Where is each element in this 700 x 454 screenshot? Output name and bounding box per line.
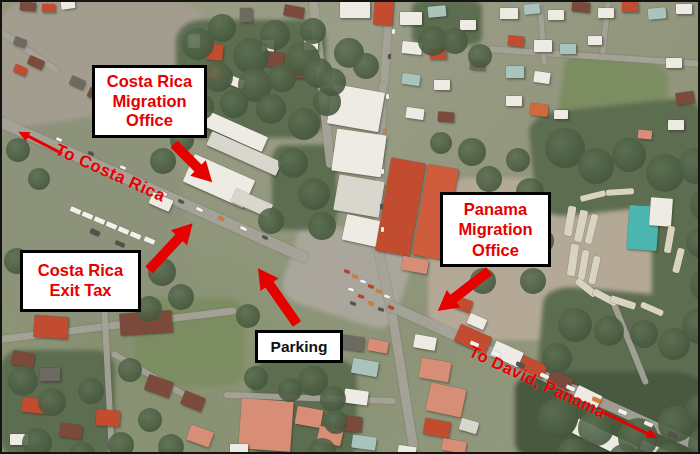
label-text-parking: Parking (271, 338, 328, 356)
border-crossing-map-image: Costa Rica Migration Office Costa Rica E… (0, 0, 700, 454)
arrow-head (646, 428, 660, 442)
label-text-costa-rica-exit-tax: Costa Rica Exit Tax (38, 261, 123, 301)
arrow-head (16, 128, 30, 142)
costa-rica-migration-arrow (174, 144, 212, 182)
arrow-shaft (601, 410, 650, 436)
label-box-panama-migration-office: Panama Migration Office (440, 192, 551, 267)
label-box-parking: Parking (255, 330, 343, 363)
panama-migration-arrow (438, 271, 489, 311)
costa-rica-exit-tax-arrow (149, 223, 193, 270)
label-text-costa-rica-migration-office: Costa Rica Migration Office (107, 72, 192, 130)
label-box-costa-rica-exit-tax: Costa Rica Exit Tax (20, 250, 141, 312)
label-box-costa-rica-migration-office: Costa Rica Migration Office (92, 65, 207, 138)
arrow-shaft (263, 279, 301, 327)
to-david-arrow (602, 411, 658, 438)
label-text-panama-migration-office: Panama Migration Office (458, 199, 532, 259)
parking-arrow (258, 268, 297, 324)
